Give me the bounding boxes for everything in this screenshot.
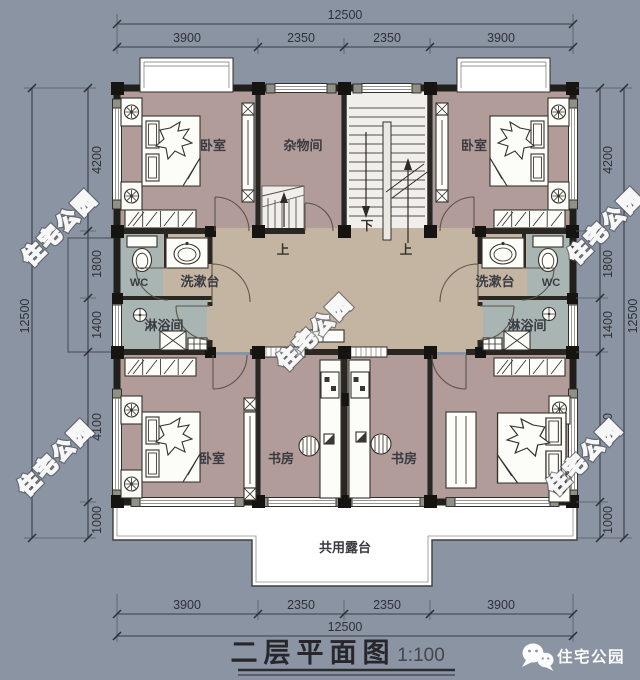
dim-left-seg-1: 1800 bbox=[90, 250, 104, 278]
label-shower-left: 淋浴间 bbox=[144, 318, 183, 333]
label-bedroom-tr: 卧室 bbox=[461, 138, 487, 153]
dim-top-overall: 12500 bbox=[328, 8, 363, 22]
staircase-storage bbox=[262, 186, 304, 230]
label-terrace: 共用露台 bbox=[319, 540, 371, 555]
floor-plan-drawing: 卧室 杂物间 卧室 WC 洗漱台 洗漱台 WC 淋浴间 淋浴间 卧室 书房 书房… bbox=[0, 0, 640, 680]
label-study-right: 书房 bbox=[391, 451, 417, 466]
label-wc-right: WC bbox=[542, 277, 560, 289]
label-bedroom-bl: 卧室 bbox=[199, 451, 225, 466]
dim-left-overall: 12500 bbox=[18, 299, 32, 334]
label-wash-right: 洗漱台 bbox=[475, 274, 514, 289]
label-wash-left: 洗漱台 bbox=[180, 274, 219, 289]
dim-top-seg-2: 2350 bbox=[373, 31, 401, 45]
label-down: 下 bbox=[361, 219, 374, 233]
dim-right-seg-1: 1800 bbox=[601, 250, 615, 278]
dim-left-seg-4: 1000 bbox=[90, 506, 104, 534]
dim-right-seg-0: 4200 bbox=[601, 146, 615, 174]
label-up-right: 上 bbox=[400, 242, 413, 257]
dim-top-seg-3: 3900 bbox=[487, 31, 515, 45]
dim-bottom-seg-2: 2350 bbox=[373, 598, 401, 612]
dim-bottom-seg-0: 3900 bbox=[173, 598, 201, 612]
label-study-left: 书房 bbox=[268, 451, 294, 466]
drawing-scale: 1:100 bbox=[397, 645, 445, 666]
dim-bottom-seg-3: 3900 bbox=[487, 598, 515, 612]
dim-bottom-seg-1: 2350 bbox=[287, 598, 315, 612]
dim-bottom-overall: 12500 bbox=[328, 620, 363, 634]
label-bedroom-tl: 卧室 bbox=[200, 138, 226, 153]
dim-right-overall: 12500 bbox=[626, 299, 640, 334]
label-wc-left: WC bbox=[130, 277, 148, 289]
label-storage: 杂物间 bbox=[283, 138, 322, 153]
dim-left-seg-0: 4200 bbox=[90, 146, 104, 174]
dim-top-seg-0: 3900 bbox=[173, 31, 201, 45]
label-shower-right: 淋浴间 bbox=[507, 318, 546, 333]
floor-plan-page: 卧室 杂物间 卧室 WC 洗漱台 洗漱台 WC 淋浴间 淋浴间 卧室 书房 书房… bbox=[0, 0, 640, 680]
dim-right-seg-2: 1400 bbox=[601, 311, 615, 339]
dim-right-seg-4: 1000 bbox=[601, 506, 615, 534]
brand-name: 住宅公园 bbox=[557, 647, 625, 666]
dim-left-seg-2: 1400 bbox=[90, 311, 104, 339]
label-up-left: 上 bbox=[277, 242, 290, 257]
drawing-title: 二层平面图 bbox=[231, 638, 396, 668]
dim-top-seg-1: 2350 bbox=[287, 31, 315, 45]
